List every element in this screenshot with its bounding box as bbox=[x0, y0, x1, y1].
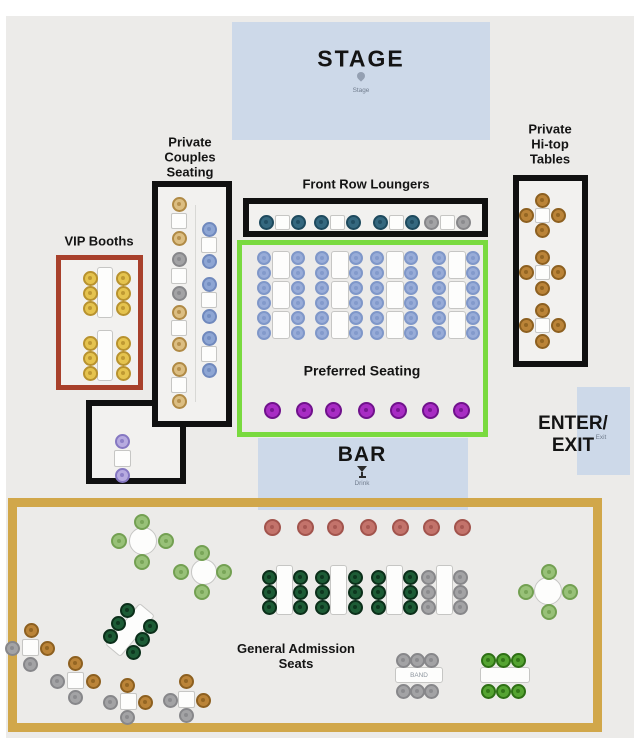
preferred-group-2-seat-11[interactable] bbox=[349, 311, 363, 325]
seat-dot bbox=[540, 308, 544, 312]
ga-round-3-seat-2[interactable] bbox=[518, 584, 534, 600]
ga-square-1-seat-3[interactable] bbox=[40, 641, 55, 656]
preferred-group-3-seat-5[interactable] bbox=[370, 311, 384, 325]
preferred-group-2-seat-8[interactable] bbox=[349, 266, 363, 280]
ga-banquet-2-table-1 bbox=[330, 565, 347, 615]
preferred-group-2-seat-6[interactable] bbox=[315, 326, 329, 340]
preferred-group-2-seat-7[interactable] bbox=[349, 251, 363, 265]
seat-dot bbox=[222, 570, 226, 574]
preferred-group-3-seat-9[interactable] bbox=[404, 281, 418, 295]
lounger-3-seat-1[interactable] bbox=[373, 215, 388, 230]
seat-dot bbox=[201, 698, 205, 702]
ga-angled-table-seat-1[interactable] bbox=[120, 603, 135, 618]
ga-banquet-1-seat-6[interactable] bbox=[293, 600, 308, 615]
ga-banquet-1-seat-2[interactable] bbox=[262, 585, 277, 600]
hitop-2-seat-3[interactable] bbox=[551, 265, 566, 280]
ga-green-table-seat-4[interactable] bbox=[481, 684, 496, 699]
ga-banquet-2-seat-2[interactable] bbox=[315, 585, 330, 600]
hitop-2-seat-1[interactable] bbox=[535, 250, 550, 265]
seat-dot bbox=[486, 658, 490, 662]
ga-banquet-2-seat-6[interactable] bbox=[348, 600, 363, 615]
seat-dot bbox=[125, 683, 129, 687]
stage-label: STAGE bbox=[317, 46, 405, 73]
hitop-2-seat-2[interactable] bbox=[519, 265, 534, 280]
seat-dot bbox=[207, 368, 211, 372]
seat-dot bbox=[437, 331, 441, 335]
hitop-3-seat-4[interactable] bbox=[535, 334, 550, 349]
seat-dot bbox=[501, 689, 505, 693]
preferred-group-1-seat-7[interactable] bbox=[291, 251, 305, 265]
ga-banquet-1-seat-1[interactable] bbox=[262, 570, 277, 585]
ga-back-row-seat-3[interactable] bbox=[327, 519, 344, 536]
preferred-group-2-seat-4[interactable] bbox=[315, 296, 329, 310]
seat-dot bbox=[302, 408, 306, 412]
vip-booth-1-seat-1[interactable] bbox=[83, 271, 98, 286]
seat-dot bbox=[296, 316, 300, 320]
ga-band-table-seat-4[interactable] bbox=[396, 684, 411, 699]
ga-banquet-3-seat-5[interactable] bbox=[403, 585, 418, 600]
preferred-group-1-table-1 bbox=[272, 251, 290, 279]
seat-dot bbox=[353, 575, 357, 579]
ga-banquet-2-seat-3[interactable] bbox=[315, 600, 330, 615]
seat-dot bbox=[459, 408, 463, 412]
seat-dot bbox=[177, 342, 181, 346]
preferred-group-4-seat-7[interactable] bbox=[466, 251, 480, 265]
ga-banquet-1-seat-5[interactable] bbox=[293, 585, 308, 600]
seat-dot bbox=[296, 271, 300, 275]
ga-banquet-3-seat-3[interactable] bbox=[371, 600, 386, 615]
seat-dot bbox=[125, 715, 129, 719]
ga-round-2-seat-3[interactable] bbox=[216, 564, 232, 580]
preferred-front-row-seat-4[interactable] bbox=[358, 402, 375, 419]
ga-band-table-seat-2[interactable] bbox=[410, 653, 425, 668]
seat-dot bbox=[73, 695, 77, 699]
seat-dot bbox=[121, 306, 125, 310]
ga-banquet-4-seat-4[interactable] bbox=[453, 570, 468, 585]
seat-dot bbox=[184, 679, 188, 683]
preferred-group-1-seat-10[interactable] bbox=[291, 296, 305, 310]
ga-square-3-seat-1[interactable] bbox=[120, 678, 135, 693]
seat-dot bbox=[375, 316, 379, 320]
vip-booth-2-seat-6[interactable] bbox=[116, 366, 131, 381]
couples-nook-seat-2[interactable] bbox=[115, 468, 130, 483]
seat-dot bbox=[88, 291, 92, 295]
seat-dot bbox=[88, 306, 92, 310]
seat-dot bbox=[409, 271, 413, 275]
seat-dot bbox=[121, 276, 125, 280]
seat-dot bbox=[200, 590, 204, 594]
seat-dot bbox=[207, 314, 211, 318]
hitop-3-seat-1[interactable] bbox=[535, 303, 550, 318]
seat-dot bbox=[200, 551, 204, 555]
ga-banquet-3-seat-6[interactable] bbox=[403, 600, 418, 615]
preferred-group-1-seat-9[interactable] bbox=[291, 281, 305, 295]
seat-dot bbox=[376, 605, 380, 609]
vip-booth-2-seat-2[interactable] bbox=[83, 351, 98, 366]
ga-back-row-seat-7[interactable] bbox=[454, 519, 471, 536]
seat-dot bbox=[10, 646, 14, 650]
ga-square-1-seat-1[interactable] bbox=[24, 623, 39, 638]
ga-round-1-seat-4[interactable] bbox=[134, 554, 150, 570]
seat-dot bbox=[354, 286, 358, 290]
ga-banquet-1-table-1 bbox=[276, 565, 293, 615]
preferred-group-1-seat-4[interactable] bbox=[257, 296, 271, 310]
ga-round-2-table-1 bbox=[191, 559, 217, 585]
ga-banquet-4-seat-6[interactable] bbox=[453, 600, 468, 615]
vip-booth-2-seat-4[interactable] bbox=[116, 336, 131, 351]
couples-right-3-seat-1[interactable] bbox=[202, 331, 217, 346]
preferred-group-3-seat-7[interactable] bbox=[404, 251, 418, 265]
preferred-group-3-seat-1[interactable] bbox=[370, 251, 384, 265]
seat-dot bbox=[398, 525, 402, 529]
preferred-group-4-seat-2[interactable] bbox=[432, 266, 446, 280]
seat-dot bbox=[501, 658, 505, 662]
ga-square-1-seat-4[interactable] bbox=[23, 657, 38, 672]
preferred-group-3-seat-10[interactable] bbox=[404, 296, 418, 310]
seat-dot bbox=[262, 286, 266, 290]
ga-round-2-seat-1[interactable] bbox=[194, 545, 210, 561]
ga-banquet-4-seat-2[interactable] bbox=[421, 585, 436, 600]
ga-back-row-seat-4[interactable] bbox=[360, 519, 377, 536]
vip-booth-1-seat-6[interactable] bbox=[116, 301, 131, 316]
zone-couples-main bbox=[152, 181, 232, 427]
seat-dot bbox=[333, 525, 337, 529]
preferred-group-3-seat-12[interactable] bbox=[404, 326, 418, 340]
vip-booth-2-seat-5[interactable] bbox=[116, 351, 131, 366]
preferred-group-1-seat-3[interactable] bbox=[257, 281, 271, 295]
seat-dot bbox=[426, 605, 430, 609]
preferred-front-row-seat-3[interactable] bbox=[325, 402, 342, 419]
preferred-group-1-seat-11[interactable] bbox=[291, 311, 305, 325]
vip-booth-1-table-1 bbox=[97, 267, 113, 318]
ga-banquet-3-seat-4[interactable] bbox=[403, 570, 418, 585]
hitop-1-seat-2[interactable] bbox=[519, 208, 534, 223]
couples-right-3-table-1 bbox=[201, 346, 217, 362]
preferred-group-3-seat-3[interactable] bbox=[370, 281, 384, 295]
seat-dot bbox=[108, 634, 112, 638]
ga-square-3-seat-3[interactable] bbox=[138, 695, 153, 710]
preferred-group-1-seat-6[interactable] bbox=[257, 326, 271, 340]
ga-square-2-seat-4[interactable] bbox=[68, 690, 83, 705]
vip-booth-2-seat-3[interactable] bbox=[83, 366, 98, 381]
ga-banquet-4-seat-1[interactable] bbox=[421, 570, 436, 585]
seat-dot bbox=[458, 605, 462, 609]
hitop-1-seat-3[interactable] bbox=[551, 208, 566, 223]
ga-band-table-seat-3[interactable] bbox=[424, 653, 439, 668]
ga-green-table-seat-1[interactable] bbox=[481, 653, 496, 668]
preferred-group-2-seat-12[interactable] bbox=[349, 326, 363, 340]
preferred-group-1-seat-12[interactable] bbox=[291, 326, 305, 340]
preferred-group-1-seat-1[interactable] bbox=[257, 251, 271, 265]
seat-dot bbox=[262, 316, 266, 320]
ga-round-1-seat-2[interactable] bbox=[111, 533, 127, 549]
preferred-group-2-table-1 bbox=[331, 251, 349, 279]
seat-dot bbox=[437, 286, 441, 290]
hitop-1-table-1 bbox=[535, 208, 550, 223]
seat-dot bbox=[547, 570, 551, 574]
seat-dot bbox=[177, 257, 181, 261]
seat-dot bbox=[207, 227, 211, 231]
hitop-3-seat-2[interactable] bbox=[519, 318, 534, 333]
preferred-group-2-table-3 bbox=[331, 311, 349, 339]
preferred-group-3-seat-11[interactable] bbox=[404, 311, 418, 325]
ga-round-3-seat-4[interactable] bbox=[541, 604, 557, 620]
vip-booth-1-seat-4[interactable] bbox=[116, 271, 131, 286]
seat-dot bbox=[120, 439, 124, 443]
lounger-4-seat-2[interactable] bbox=[456, 215, 471, 230]
preferred-group-4-seat-4[interactable] bbox=[432, 296, 446, 310]
preferred-group-3-seat-8[interactable] bbox=[404, 266, 418, 280]
ga-angled-table-seat-2[interactable] bbox=[111, 616, 126, 631]
hitop-3-seat-3[interactable] bbox=[551, 318, 566, 333]
seat-dot bbox=[267, 575, 271, 579]
preferred-group-2-seat-9[interactable] bbox=[349, 281, 363, 295]
preferred-group-2-seat-3[interactable] bbox=[315, 281, 329, 295]
preferred-front-row-seat-1[interactable] bbox=[264, 402, 281, 419]
vip-booth-1-seat-3[interactable] bbox=[83, 301, 98, 316]
seat-dot bbox=[364, 408, 368, 412]
ga-square-4-table-1 bbox=[178, 691, 195, 708]
seat-dot bbox=[540, 198, 544, 202]
ga-green-table-seat-3[interactable] bbox=[511, 653, 526, 668]
seat-dot bbox=[408, 590, 412, 594]
seat-dot bbox=[45, 646, 49, 650]
seat-dot bbox=[108, 700, 112, 704]
preferred-front-row-seat-5[interactable] bbox=[390, 402, 407, 419]
stage-sublabel: Stage bbox=[353, 86, 370, 93]
preferred-group-3-seat-6[interactable] bbox=[370, 326, 384, 340]
seat-dot bbox=[121, 356, 125, 360]
hitop-2-seat-4[interactable] bbox=[535, 281, 550, 296]
lounger-1-seat-1[interactable] bbox=[259, 215, 274, 230]
ga-square-2-table-1 bbox=[67, 672, 84, 689]
seat-dot bbox=[524, 323, 528, 327]
preferred-group-3-seat-2[interactable] bbox=[370, 266, 384, 280]
ga-round-2-seat-2[interactable] bbox=[173, 564, 189, 580]
ga-band-table-seat-6[interactable] bbox=[424, 684, 439, 699]
ga-square-3-table-1 bbox=[120, 693, 137, 710]
preferred-group-1-seat-2[interactable] bbox=[257, 266, 271, 280]
seat-dot bbox=[270, 525, 274, 529]
seat-dot bbox=[409, 301, 413, 305]
ga-back-row-seat-5[interactable] bbox=[392, 519, 409, 536]
seat-dot bbox=[458, 590, 462, 594]
ga-band-table-seat-5[interactable] bbox=[410, 684, 425, 699]
preferred-front-row-seat-6[interactable] bbox=[422, 402, 439, 419]
zone-couples-divider bbox=[195, 205, 196, 402]
ga-round-3-seat-3[interactable] bbox=[562, 584, 578, 600]
seat-dot bbox=[471, 256, 475, 260]
seat-dot bbox=[296, 220, 300, 224]
seat-dot bbox=[177, 236, 181, 240]
hitop-1-seat-1[interactable] bbox=[535, 193, 550, 208]
couples-left-2-seat-2[interactable] bbox=[172, 286, 187, 301]
hitop-1-seat-4[interactable] bbox=[535, 223, 550, 238]
seat-dot bbox=[524, 270, 528, 274]
seat-dot bbox=[55, 679, 59, 683]
ga-round-2-seat-4[interactable] bbox=[194, 584, 210, 600]
preferred-group-2-seat-10[interactable] bbox=[349, 296, 363, 310]
couples-left-2-table-1 bbox=[171, 268, 187, 284]
couples-nook-table-1 bbox=[114, 450, 131, 467]
ga-banquet-2-seat-1[interactable] bbox=[315, 570, 330, 585]
preferred-group-3-seat-4[interactable] bbox=[370, 296, 384, 310]
ga-banquet-3-seat-2[interactable] bbox=[371, 585, 386, 600]
ga-back-row-seat-1[interactable] bbox=[264, 519, 281, 536]
ga-banquet-3-seat-1[interactable] bbox=[371, 570, 386, 585]
couples-left-2-seat-1[interactable] bbox=[172, 252, 187, 267]
ga-round-1-seat-1[interactable] bbox=[134, 514, 150, 530]
preferred-front-row-seat-7[interactable] bbox=[453, 402, 470, 419]
lounger-2-seat-1[interactable] bbox=[314, 215, 329, 230]
preferred-group-2-seat-1[interactable] bbox=[315, 251, 329, 265]
ga-back-row-seat-6[interactable] bbox=[423, 519, 440, 536]
preferred-group-1-seat-5[interactable] bbox=[257, 311, 271, 325]
ga-banquet-1-seat-4[interactable] bbox=[293, 570, 308, 585]
seat-dot bbox=[262, 301, 266, 305]
loungers-zone-label: Front Row Loungers bbox=[302, 177, 429, 192]
seat-dot bbox=[401, 689, 405, 693]
seat-dot bbox=[177, 291, 181, 295]
ga-banquet-1-seat-3[interactable] bbox=[262, 600, 277, 615]
ga-square-4-seat-2[interactable] bbox=[163, 693, 178, 708]
seat-dot bbox=[429, 220, 433, 224]
couples-left-4-seat-2[interactable] bbox=[172, 394, 187, 409]
couples-zone-label: Private Couples Seating bbox=[164, 135, 215, 180]
couples-left-3-seat-2[interactable] bbox=[172, 337, 187, 352]
seat-dot bbox=[320, 331, 324, 335]
ga-angled-table-seat-4[interactable] bbox=[143, 619, 158, 634]
lounger-1-seat-2[interactable] bbox=[291, 215, 306, 230]
ga-green-table-seat-6[interactable] bbox=[511, 684, 526, 699]
preferred-group-1-seat-8[interactable] bbox=[291, 266, 305, 280]
couples-right-1-seat-2[interactable] bbox=[202, 254, 217, 269]
ga-round-3-seat-1[interactable] bbox=[541, 564, 557, 580]
preferred-group-4-seat-6[interactable] bbox=[432, 326, 446, 340]
bar-drink-icon-base bbox=[359, 476, 366, 478]
seat-dot bbox=[524, 213, 528, 217]
ga-green-table-seat-5[interactable] bbox=[496, 684, 511, 699]
seat-dot bbox=[408, 605, 412, 609]
ga-square-2-seat-3[interactable] bbox=[86, 674, 101, 689]
ga-square-4-seat-3[interactable] bbox=[196, 693, 211, 708]
seat-dot bbox=[320, 316, 324, 320]
seat-dot bbox=[353, 590, 357, 594]
seat-dot bbox=[168, 698, 172, 702]
lounger-2-seat-2[interactable] bbox=[346, 215, 361, 230]
seat-dot bbox=[547, 610, 551, 614]
seat-dot bbox=[524, 590, 528, 594]
seat-dot bbox=[28, 662, 32, 666]
band-table-label: BAND bbox=[410, 671, 428, 678]
exit-sublabel: Exit bbox=[596, 433, 607, 440]
lounger-3-seat-2[interactable] bbox=[405, 215, 420, 230]
seat-dot bbox=[29, 628, 33, 632]
preferred-group-2-seat-5[interactable] bbox=[315, 311, 329, 325]
preferred-group-4-seat-10[interactable] bbox=[466, 296, 480, 310]
seat-dot bbox=[471, 301, 475, 305]
ga-square-2-seat-2[interactable] bbox=[50, 674, 65, 689]
seat-dot bbox=[556, 213, 560, 217]
couples-right-3-seat-2[interactable] bbox=[202, 363, 217, 378]
preferred-group-2-table-2 bbox=[331, 281, 349, 309]
couples-right-2-table-1 bbox=[201, 292, 217, 308]
seat-dot bbox=[376, 590, 380, 594]
seat-dot bbox=[148, 624, 152, 628]
ga-banquet-4-seat-3[interactable] bbox=[421, 600, 436, 615]
ga-square-4-seat-1[interactable] bbox=[179, 674, 194, 689]
preferred-group-4-seat-5[interactable] bbox=[432, 311, 446, 325]
ga-banquet-2-seat-5[interactable] bbox=[348, 585, 363, 600]
seat-dot bbox=[375, 286, 379, 290]
ga-angled-table-seat-5[interactable] bbox=[135, 632, 150, 647]
ga-square-4-seat-4[interactable] bbox=[179, 708, 194, 723]
seat-dot bbox=[319, 220, 323, 224]
ga-banquet-4-seat-5[interactable] bbox=[453, 585, 468, 600]
preferred-group-4-seat-1[interactable] bbox=[432, 251, 446, 265]
couples-right-2-seat-2[interactable] bbox=[202, 309, 217, 324]
seat-dot bbox=[540, 255, 544, 259]
preferred-front-row-seat-2[interactable] bbox=[296, 402, 313, 419]
ga-back-row-seat-2[interactable] bbox=[297, 519, 314, 536]
seat-dot bbox=[458, 575, 462, 579]
vip-booth-1-seat-5[interactable] bbox=[116, 286, 131, 301]
couples-nook-seat-1[interactable] bbox=[115, 434, 130, 449]
seat-dot bbox=[375, 256, 379, 260]
ga-band-table-seat-1[interactable] bbox=[396, 653, 411, 668]
ga-square-3-seat-2[interactable] bbox=[103, 695, 118, 710]
preferred-group-2-seat-2[interactable] bbox=[315, 266, 329, 280]
couples-left-1-seat-1[interactable] bbox=[172, 197, 187, 212]
ga-square-3-seat-4[interactable] bbox=[120, 710, 135, 725]
seat-dot bbox=[143, 700, 147, 704]
preferred-group-4-seat-9[interactable] bbox=[466, 281, 480, 295]
seat-dot bbox=[556, 323, 560, 327]
vip-booth-2-seat-1[interactable] bbox=[83, 336, 98, 351]
seat-dot bbox=[540, 286, 544, 290]
seat-dot bbox=[88, 341, 92, 345]
seat-dot bbox=[267, 590, 271, 594]
ga-round-1-seat-3[interactable] bbox=[158, 533, 174, 549]
seat-dot bbox=[320, 605, 324, 609]
ga-square-1-seat-2[interactable] bbox=[5, 641, 20, 656]
preferred-group-4-seat-12[interactable] bbox=[466, 326, 480, 340]
seat-dot bbox=[177, 367, 181, 371]
couples-left-3-seat-1[interactable] bbox=[172, 305, 187, 320]
ga-green-table-seat-2[interactable] bbox=[496, 653, 511, 668]
vip-booth-1-seat-2[interactable] bbox=[83, 286, 98, 301]
ga-angled-table-seat-3[interactable] bbox=[103, 629, 118, 644]
couples-left-4-seat-1[interactable] bbox=[172, 362, 187, 377]
hitop-2-table-1 bbox=[535, 265, 550, 280]
couples-left-1-seat-2[interactable] bbox=[172, 231, 187, 246]
seat-dot bbox=[354, 271, 358, 275]
seat-dot bbox=[556, 270, 560, 274]
couples-left-1-table-1 bbox=[171, 213, 187, 229]
seat-dot bbox=[117, 539, 121, 543]
couples-right-1-seat-1[interactable] bbox=[202, 222, 217, 237]
ga-banquet-2-seat-4[interactable] bbox=[348, 570, 363, 585]
preferred-group-4-seat-11[interactable] bbox=[466, 311, 480, 325]
seat-dot bbox=[91, 679, 95, 683]
preferred-group-4-seat-3[interactable] bbox=[432, 281, 446, 295]
seat-dot bbox=[88, 371, 92, 375]
couples-right-2-seat-1[interactable] bbox=[202, 277, 217, 292]
ga-angled-table-seat-6[interactable] bbox=[126, 645, 141, 660]
preferred-group-4-seat-8[interactable] bbox=[466, 266, 480, 280]
ga-square-2-seat-1[interactable] bbox=[68, 656, 83, 671]
lounger-4-seat-1[interactable] bbox=[424, 215, 439, 230]
